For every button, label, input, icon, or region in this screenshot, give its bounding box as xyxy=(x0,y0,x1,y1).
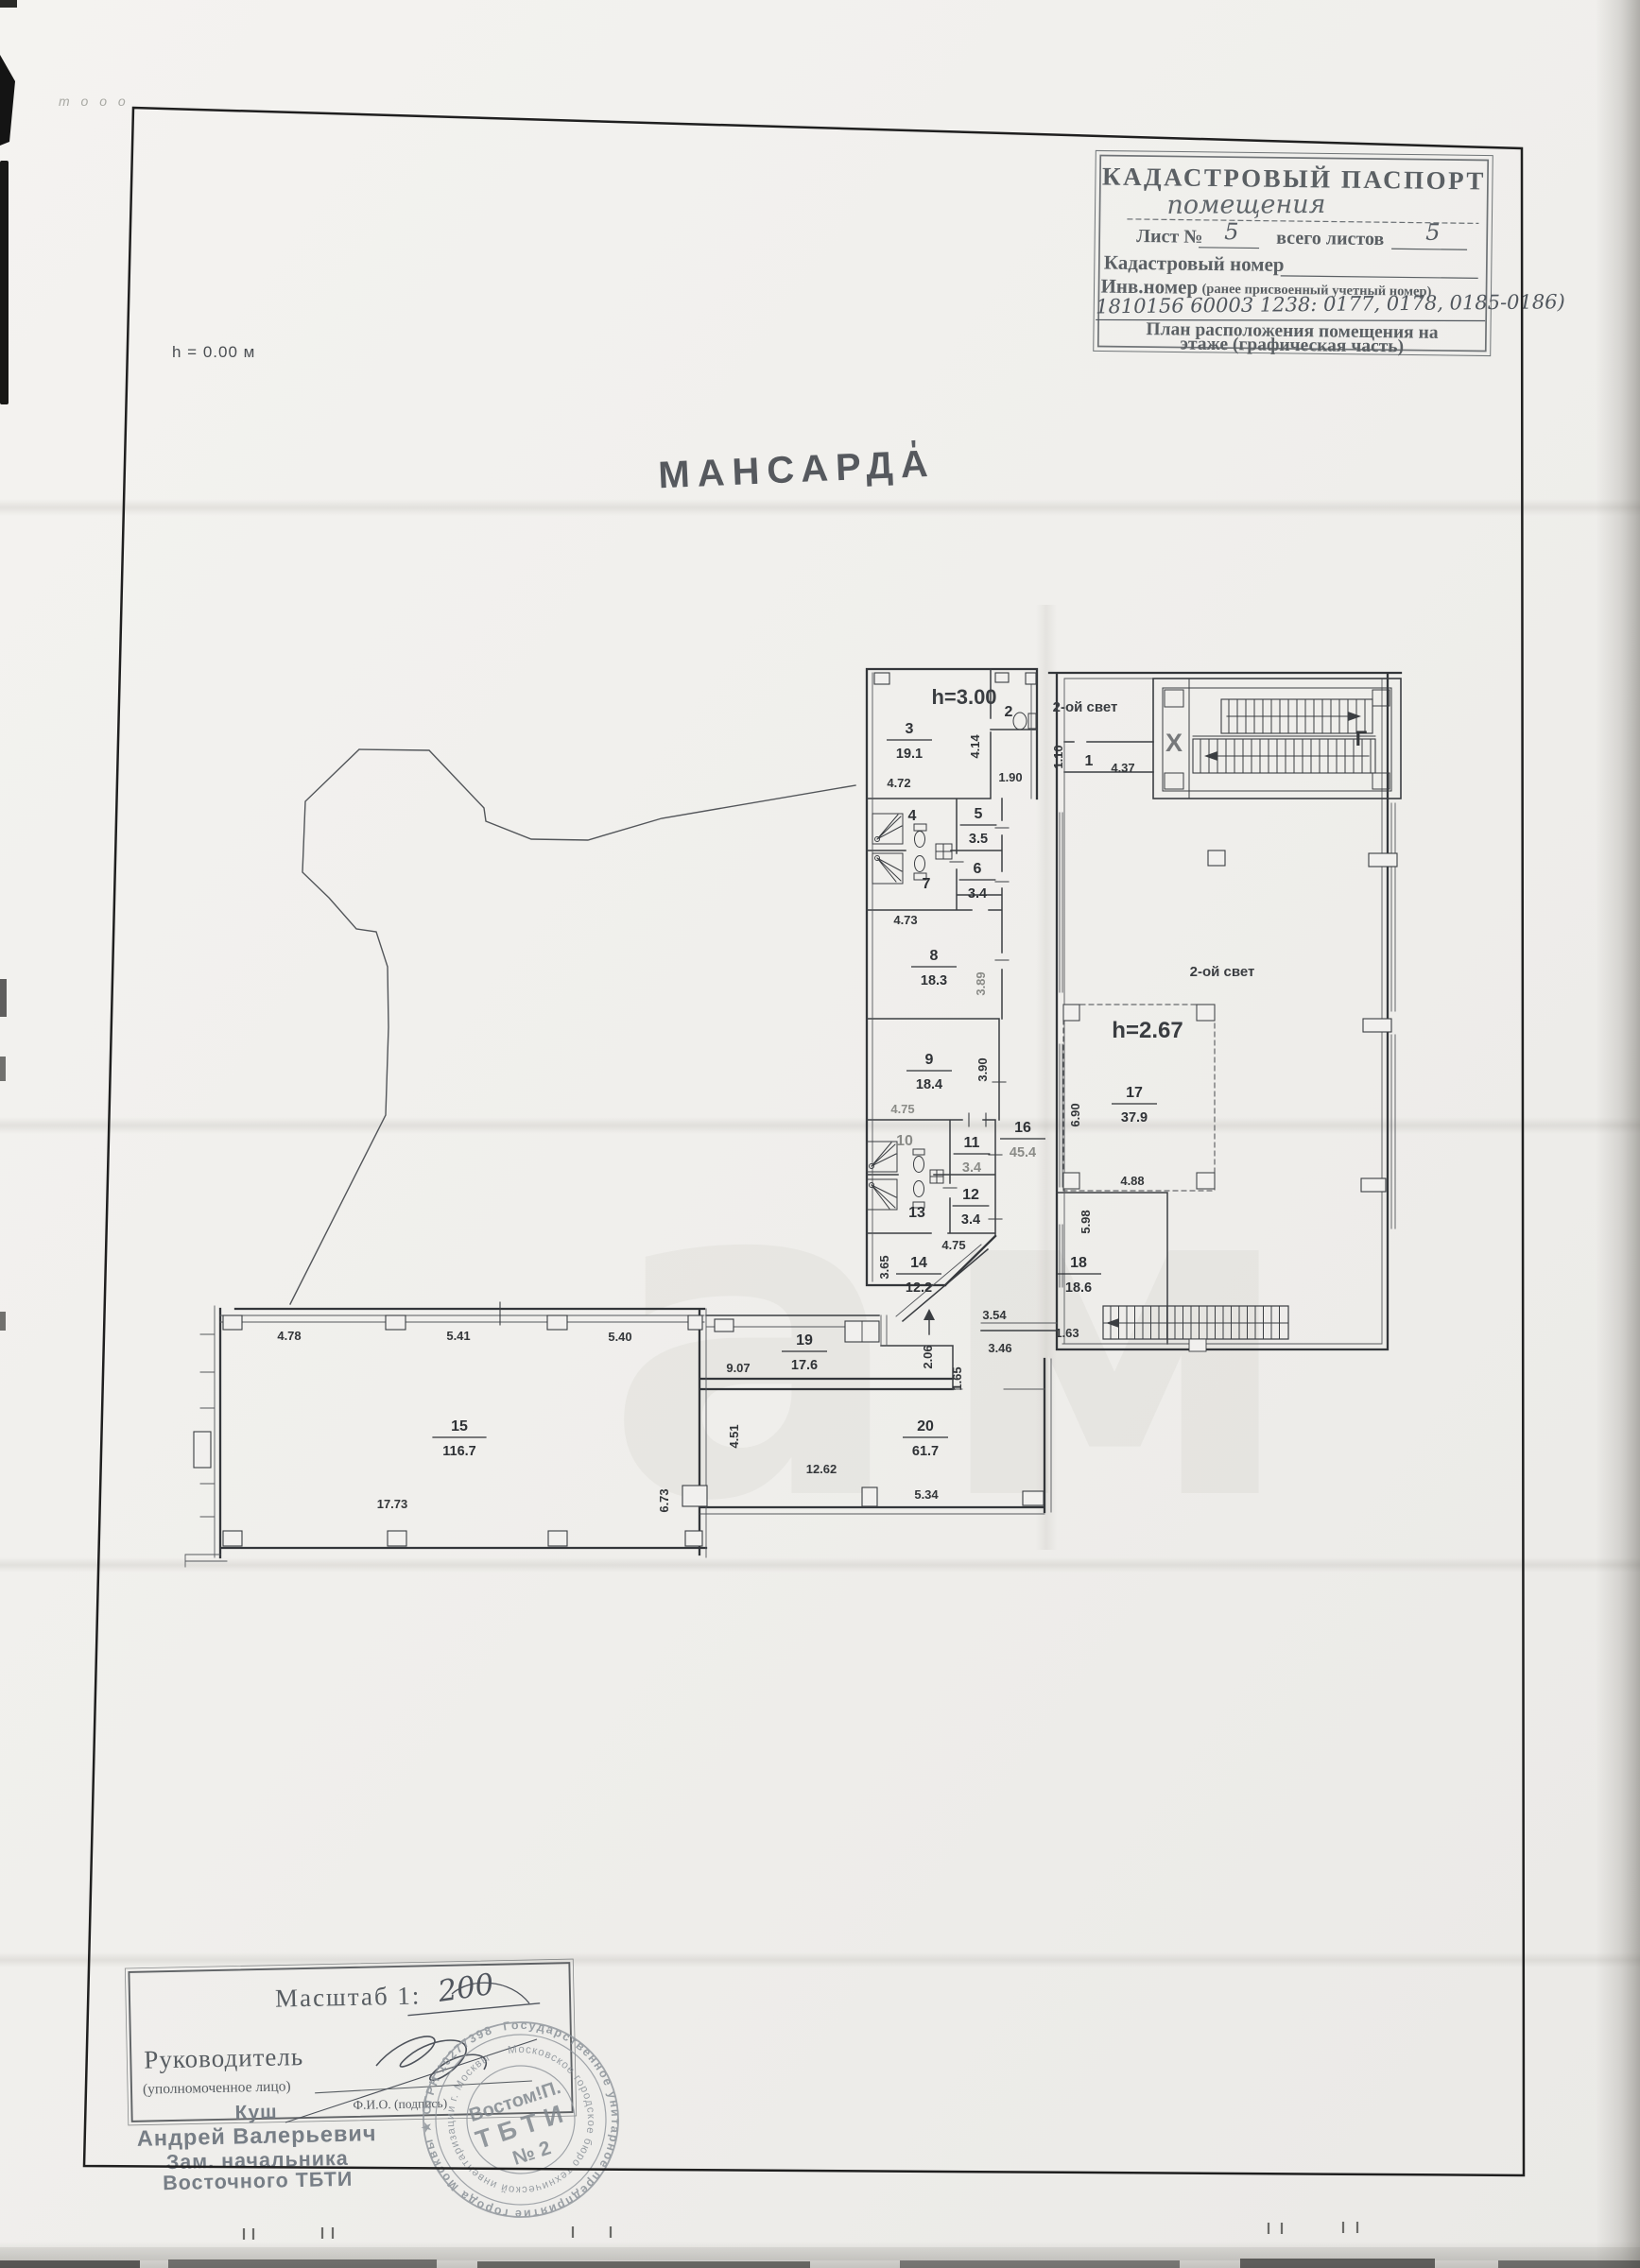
room-area: 18.3 xyxy=(921,973,947,988)
room-number: 19 xyxy=(796,1332,813,1349)
scanned-cadastral-passport-page: ам т о о о h = 0.00 м МАНСАРДА ' xyxy=(0,0,1640,2268)
stair-letter-label: Г xyxy=(1355,727,1368,750)
dimension-label: 1.63 xyxy=(1055,1326,1079,1340)
room-number: 15 xyxy=(451,1418,468,1435)
sheet-label: Лист № xyxy=(1136,226,1202,248)
sheet-value: 5 xyxy=(1224,218,1239,245)
total-sheets-label: всего листов xyxy=(1276,228,1385,249)
room-area: 45.4 xyxy=(1010,1145,1036,1160)
room-area: 3.4 xyxy=(961,1212,980,1228)
floor-height-note: h = 0.00 м xyxy=(172,343,255,361)
room-number: 6 xyxy=(974,861,982,877)
head-note: (уполномоченное лицо) xyxy=(143,2078,291,2097)
room-area: 12.2 xyxy=(906,1280,932,1296)
dimension-label: 1.10 xyxy=(1051,745,1065,768)
dimension-label: 4.37 xyxy=(1111,761,1134,775)
scale-label: Масштаб 1: xyxy=(275,1981,422,2012)
dimension-label: 4.88 xyxy=(1120,1174,1144,1188)
doc-subtitle-handwritten: помещения xyxy=(1166,190,1325,220)
dimension-label: 5.41 xyxy=(446,1329,470,1343)
dimension-label: 1.65 xyxy=(950,1366,964,1390)
officer-stamp-line: Куш xyxy=(234,2102,278,2124)
stair-letter-label: X xyxy=(1165,729,1183,757)
room-number: 17 xyxy=(1126,1085,1143,1101)
open-area-label: 2-ой свет xyxy=(1053,699,1118,715)
head-label: Руководитель xyxy=(144,2042,303,2074)
dimension-label: 3.89 xyxy=(974,971,988,995)
dimension-label: 4.73 xyxy=(893,913,917,927)
dimension-label: 3.65 xyxy=(877,1255,891,1279)
room-number: 12 xyxy=(962,1187,979,1203)
floor-title-tick: ' xyxy=(909,435,918,466)
dimension-label: 3.54 xyxy=(982,1308,1007,1322)
room-number: 9 xyxy=(925,1052,934,1068)
page-canvas: ам т о о о h = 0.00 м МАНСАРДА ' xyxy=(0,0,1640,2268)
room-number: 3 xyxy=(906,721,914,737)
room-number: 4 xyxy=(908,808,917,824)
room-number: 8 xyxy=(930,948,939,964)
room-number: 2 xyxy=(1005,704,1013,720)
room-number: 14 xyxy=(910,1255,927,1271)
room-area: 37.9 xyxy=(1121,1110,1148,1125)
dimension-label: 1.90 xyxy=(998,770,1022,784)
room-area: 116.7 xyxy=(442,1444,476,1459)
dimension-label: 3.46 xyxy=(988,1341,1011,1355)
room-area: 61.7 xyxy=(912,1444,939,1459)
dimension-label: 12.62 xyxy=(806,1462,837,1476)
total-sheets-value: 5 xyxy=(1425,219,1441,246)
dimension-label: 3.90 xyxy=(975,1057,990,1081)
paper-crease-1 xyxy=(0,499,1640,516)
dimension-label: 5.34 xyxy=(914,1487,939,1502)
dimension-label: 17.73 xyxy=(377,1497,408,1511)
plan-caption-line2: этаже (графическая часть) xyxy=(1180,335,1404,357)
room-number: 10 xyxy=(896,1133,913,1149)
room-area: 18.4 xyxy=(916,1077,942,1092)
room-area: 18.6 xyxy=(1065,1280,1092,1296)
room-number: 7 xyxy=(923,876,931,892)
officer-stamp-line: Восточного ТБТИ xyxy=(163,2168,354,2195)
room-number: 11 xyxy=(964,1135,980,1151)
paper-crease-4 xyxy=(0,1952,1640,1967)
dimension-label: 4.72 xyxy=(887,776,910,790)
open-area-label: 2-ой свет xyxy=(1190,964,1255,980)
dimension-label: 6.73 xyxy=(657,1488,671,1512)
dimension-label: 4.51 xyxy=(727,1424,741,1448)
room-area: 3.4 xyxy=(968,886,987,902)
dimension-label: 6.90 xyxy=(1068,1103,1082,1126)
room-area: 3.5 xyxy=(969,832,988,847)
dimension-label: 5.40 xyxy=(608,1330,631,1344)
room-area: 19.1 xyxy=(896,747,923,762)
room-number: 20 xyxy=(917,1418,934,1435)
room-number: 1 xyxy=(1085,753,1094,769)
room-number: 5 xyxy=(975,806,983,822)
ceiling-height-label: h=2.67 xyxy=(1112,1018,1183,1043)
corner-scribble: т о о о xyxy=(59,94,129,109)
dimension-label: 4.14 xyxy=(968,734,982,759)
dimension-label: 4.78 xyxy=(277,1329,301,1343)
dimension-label: 5.98 xyxy=(1079,1210,1093,1233)
dimension-label: 4.75 xyxy=(941,1238,965,1252)
room-area: 3.4 xyxy=(962,1160,981,1176)
room-number: 18 xyxy=(1070,1255,1087,1271)
room-area: 17.6 xyxy=(791,1358,818,1373)
ceiling-height-label: h=3.00 xyxy=(931,685,996,709)
dimension-label: 2.06 xyxy=(921,1345,935,1368)
cadastral-number-label: Кадастровый номер xyxy=(1104,251,1285,276)
room-number: 13 xyxy=(908,1205,925,1221)
dimension-label: 9.07 xyxy=(726,1361,750,1375)
dimension-label: 4.75 xyxy=(890,1102,914,1116)
room-number: 16 xyxy=(1014,1120,1031,1136)
